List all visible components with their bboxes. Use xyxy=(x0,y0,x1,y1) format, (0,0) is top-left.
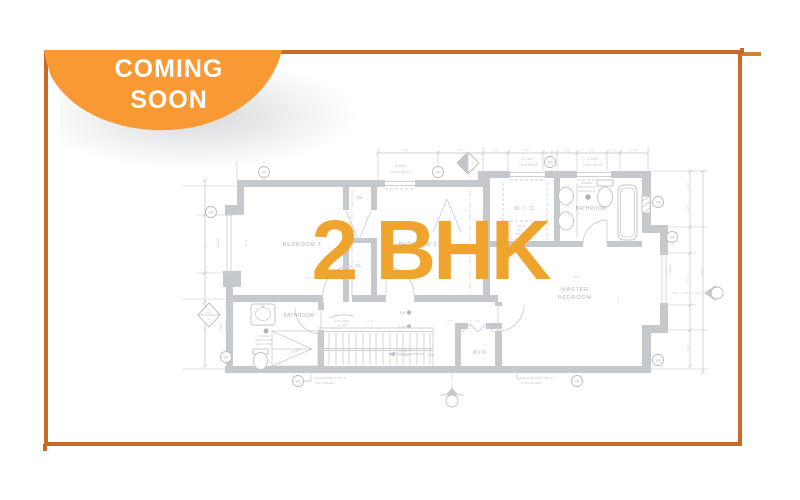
coming-soon-card: BEDROOM 3BEDROOM 2CL.CL.W. I. C.BATHROOM… xyxy=(0,0,800,500)
border-corner-overshoot-top-right-v xyxy=(740,48,744,54)
badge-line-1: COMING xyxy=(64,54,274,85)
badge-line-2: SOON xyxy=(64,85,274,116)
border-corner-overshoot-bottom-left xyxy=(43,444,47,451)
badge-text: COMING SOON xyxy=(64,54,274,116)
border-corner-overshoot-top-right xyxy=(742,52,761,56)
